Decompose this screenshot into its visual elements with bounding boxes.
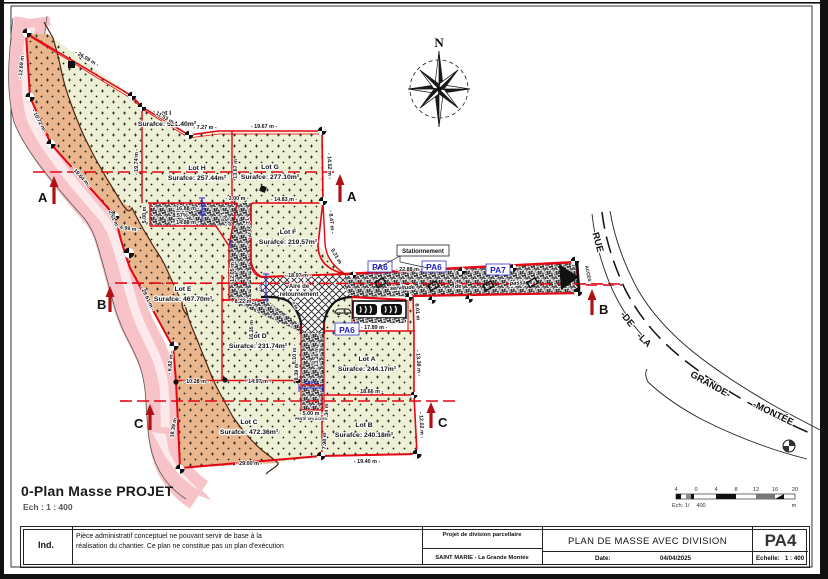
- svg-text:- 7.27 m -: - 7.27 m -: [193, 125, 217, 131]
- svg-text:- 22.88 m -: - 22.88 m -: [396, 267, 423, 273]
- svg-text:Lot E: Lot E: [175, 286, 192, 293]
- svg-text:Surafce: 231.74m²: Surafce: 231.74m²: [229, 343, 288, 350]
- svg-text:- 14.52 m -: - 14.52 m -: [326, 153, 333, 180]
- svg-text:7.98 m: 7.98 m: [322, 432, 329, 449]
- svg-text:Surafce: 219.57m²: Surafce: 219.57m²: [259, 239, 318, 246]
- svg-text:Surafce: 472.36m²: Surafce: 472.36m²: [220, 429, 279, 436]
- svg-text:C: C: [134, 416, 144, 431]
- svg-text:- 3.00 m -: - 3.00 m -: [225, 196, 249, 202]
- svg-text:- 14.88 m -: - 14.88 m -: [173, 220, 200, 226]
- svg-text:Stationnement: Stationnement: [402, 249, 444, 255]
- svg-text:4.00 m: 4.00 m: [304, 380, 318, 385]
- svg-text:Surafce: 467.70m²: Surafce: 467.70m²: [154, 296, 213, 303]
- svg-text:13.36 m: 13.36 m: [314, 347, 320, 367]
- svg-text:Lot F: Lot F: [280, 229, 297, 236]
- svg-text:Lot C: Lot C: [240, 419, 257, 426]
- svg-text:12: 12: [753, 487, 759, 493]
- svg-text:Surafce: 244.17m²: Surafce: 244.17m²: [338, 366, 397, 373]
- svg-text:0-Plan Masse PROJET: 0-Plan Masse PROJET: [21, 483, 174, 499]
- svg-text:- 14.83 m -: - 14.83 m -: [271, 197, 298, 203]
- svg-text:0: 0: [694, 487, 697, 493]
- svg-text:4: 4: [674, 487, 677, 493]
- svg-text:- 19.40 m -: - 19.40 m -: [354, 459, 381, 465]
- svg-text:8: 8: [734, 487, 737, 493]
- svg-text:Lot A: Lot A: [358, 356, 375, 363]
- svg-text:Lot G: Lot G: [261, 164, 279, 171]
- svg-text:- 19.74 m -: - 19.74 m -: [134, 149, 140, 176]
- svg-text:4.00: 4.00: [201, 201, 206, 210]
- svg-text:Surafce: 257.44m²: Surafce: 257.44m²: [168, 175, 227, 182]
- svg-text:PA6: PA6: [339, 325, 355, 335]
- svg-text:PA6: PA6: [426, 262, 442, 272]
- svg-text:- 16.88 m -: - 16.88 m -: [173, 206, 200, 212]
- svg-text:8.39 m: 8.39 m: [294, 363, 300, 380]
- svg-text:Aire de: Aire de: [289, 284, 310, 290]
- svg-text:12.05 m: 12.05 m: [230, 262, 236, 282]
- svg-text:13.67 m: 13.67 m: [233, 159, 240, 179]
- svg-text:de: de: [455, 284, 462, 290]
- svg-text:Lot B: Lot B: [355, 422, 372, 429]
- svg-text:A: A: [38, 190, 48, 205]
- svg-text:8.57%: 8.57%: [172, 213, 187, 219]
- svg-text:20: 20: [792, 487, 798, 493]
- svg-text:4: 4: [714, 487, 717, 493]
- svg-text:Lot H: Lot H: [188, 165, 205, 172]
- svg-text:- 17.89 m -: - 17.89 m -: [361, 325, 388, 331]
- svg-text:PENTE 15% ACCES: PENTE 15% ACCES: [295, 417, 327, 421]
- svg-text:A: A: [347, 189, 357, 204]
- svg-text:5.00 m: 5.00 m: [142, 206, 148, 223]
- svg-text:Ech : 1 : 400: Ech : 1 : 400: [23, 502, 73, 512]
- svg-text:C: C: [438, 415, 448, 430]
- svg-text:- 10.28 m -: - 10.28 m -: [183, 379, 210, 385]
- svg-text:- 14.97 m -: - 14.97 m -: [245, 379, 272, 385]
- svg-text:B: B: [97, 297, 106, 312]
- svg-text:400: 400: [696, 503, 705, 509]
- svg-text:Ech: 1/: Ech: 1/: [672, 503, 690, 509]
- svg-text:Surafce: 277.10m²: Surafce: 277.10m²: [241, 174, 300, 181]
- svg-text:16.35 m: 16.35 m: [249, 320, 255, 340]
- svg-text:retournement: retournement: [280, 292, 319, 298]
- svg-text:PA7: PA7: [490, 265, 506, 275]
- svg-text:- 8.22 m -: - 8.22 m -: [231, 299, 255, 305]
- svg-text:Surafce: 240.18m²: Surafce: 240.18m²: [335, 432, 394, 439]
- svg-text:- 18.97 m -: - 18.97 m -: [285, 273, 312, 279]
- svg-text:4.00: 4.00: [258, 283, 263, 292]
- svg-text:16: 16: [772, 487, 778, 493]
- svg-text:- 18.66 m -: - 18.66 m -: [357, 389, 384, 395]
- svg-text:- 29.00 m -: - 29.00 m -: [236, 461, 263, 467]
- svg-text:B: B: [599, 302, 608, 317]
- svg-text:- 19.67 m -: - 19.67 m -: [251, 124, 278, 130]
- svg-text:m: m: [792, 503, 797, 509]
- svg-text:N: N: [434, 35, 444, 50]
